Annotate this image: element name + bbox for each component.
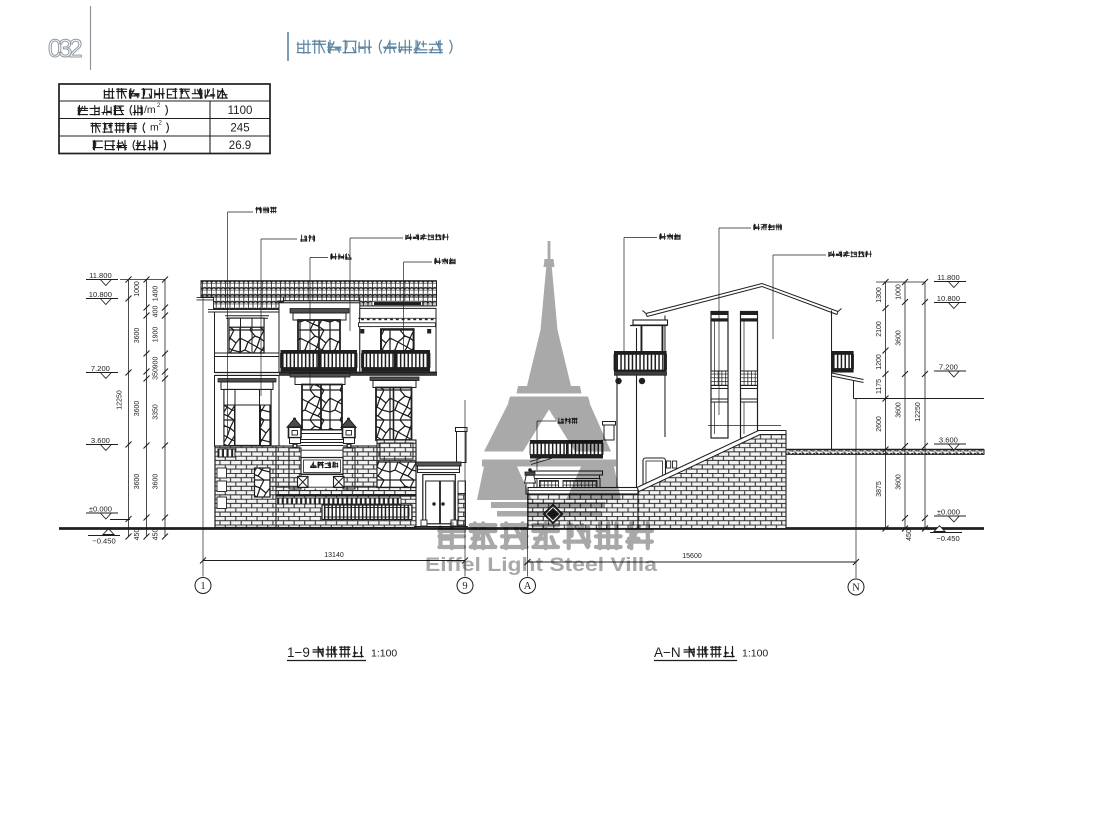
svg-text:10.800: 10.800 <box>89 290 112 299</box>
svg-text:3350: 3350 <box>153 404 160 420</box>
svg-text:3600: 3600 <box>896 330 903 346</box>
svg-text:3600: 3600 <box>134 401 141 417</box>
svg-text:26.9: 26.9 <box>229 140 251 152</box>
svg-text:1−9: 1−9 <box>287 645 310 660</box>
svg-text:1400: 1400 <box>153 286 160 302</box>
svg-text:A−N: A−N <box>654 645 681 660</box>
svg-text:900: 900 <box>153 357 160 369</box>
svg-text:12250: 12250 <box>915 402 922 422</box>
svg-text:400: 400 <box>153 306 160 318</box>
svg-text:3875: 3875 <box>876 481 883 497</box>
svg-text:3600: 3600 <box>153 474 160 490</box>
svg-text:A: A <box>524 581 532 592</box>
svg-text:1: 1 <box>200 581 205 592</box>
svg-text:1000: 1000 <box>134 281 141 297</box>
svg-text:3600: 3600 <box>896 402 903 418</box>
svg-text:032: 032 <box>48 35 82 63</box>
svg-text:11.800: 11.800 <box>937 273 960 282</box>
svg-text:1:100: 1:100 <box>371 648 397 660</box>
svg-text:9: 9 <box>462 581 467 592</box>
svg-text:450: 450 <box>906 529 913 541</box>
svg-text:3.600: 3.600 <box>91 436 110 445</box>
svg-text:11.800: 11.800 <box>89 271 112 280</box>
svg-text:450: 450 <box>134 529 141 541</box>
svg-text:10.800: 10.800 <box>937 294 960 303</box>
svg-text:1175: 1175 <box>876 379 883 394</box>
svg-text:450: 450 <box>153 529 160 541</box>
svg-text:1900: 1900 <box>153 327 160 343</box>
svg-text:1100: 1100 <box>228 105 253 117</box>
svg-text:2100: 2100 <box>876 321 883 337</box>
svg-text:1200: 1200 <box>876 354 883 370</box>
svg-text:±0.000: ±0.000 <box>89 505 112 514</box>
svg-text:3600: 3600 <box>896 474 903 490</box>
svg-text:12250: 12250 <box>117 390 124 410</box>
svg-text:15600: 15600 <box>682 553 702 560</box>
svg-text:−0.450: −0.450 <box>936 534 959 543</box>
svg-text:7.200: 7.200 <box>939 363 958 372</box>
svg-text:1300: 1300 <box>876 287 883 303</box>
svg-text:1:100: 1:100 <box>742 648 768 660</box>
svg-text:13140: 13140 <box>324 552 344 559</box>
svg-text:3600: 3600 <box>134 328 141 344</box>
svg-text:3.600: 3.600 <box>939 436 958 445</box>
svg-text:350: 350 <box>153 368 160 380</box>
svg-text:3600: 3600 <box>134 474 141 490</box>
svg-text:±0.000: ±0.000 <box>937 508 960 517</box>
svg-text:/m: /m <box>144 104 156 116</box>
svg-text:Eiffel Light Steel Villa: Eiffel Light Steel Villa <box>425 555 658 576</box>
svg-text:2600: 2600 <box>876 416 883 432</box>
svg-text:7.200: 7.200 <box>91 364 110 373</box>
svg-text:−0.450: −0.450 <box>92 537 115 546</box>
svg-text:N: N <box>852 583 860 594</box>
svg-text:245: 245 <box>230 123 249 135</box>
svg-text:1000: 1000 <box>896 284 903 300</box>
